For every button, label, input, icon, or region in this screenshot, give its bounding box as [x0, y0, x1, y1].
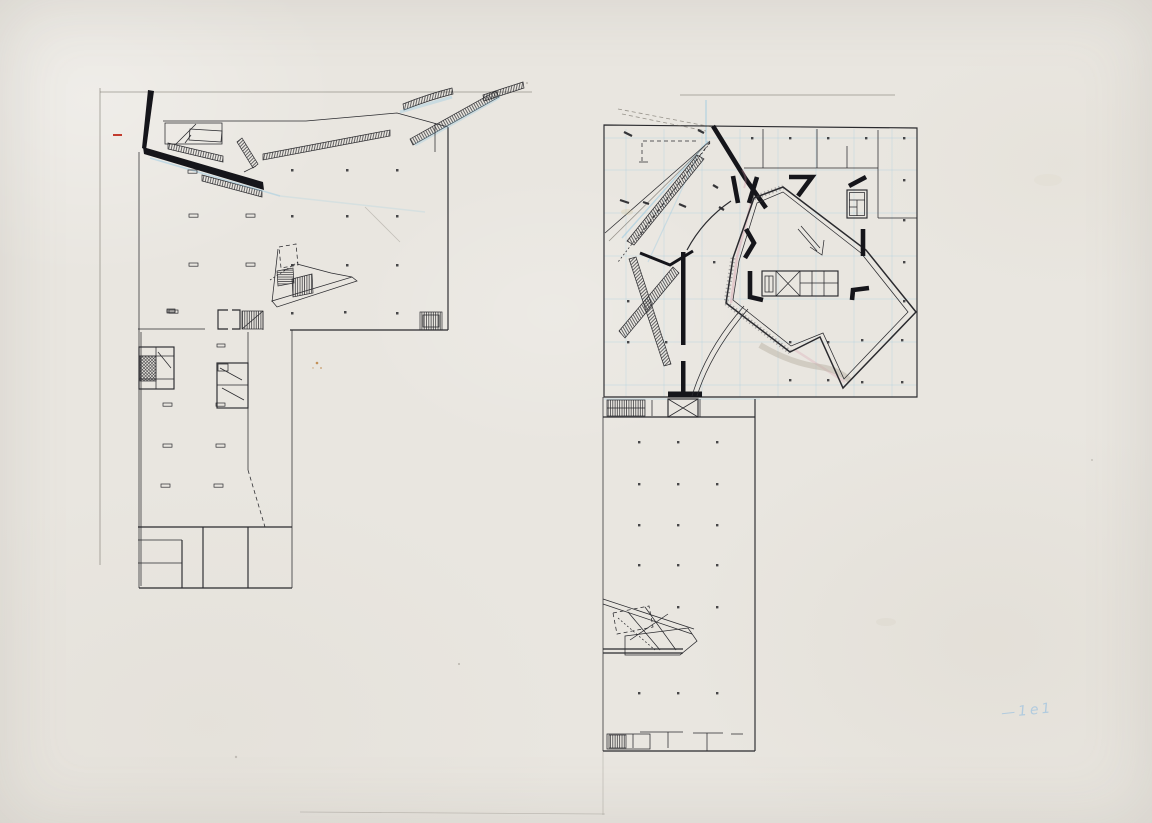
curved-wall: [687, 201, 731, 250]
plan-left: [100, 82, 532, 588]
square-outline: [604, 125, 917, 397]
thick-wall: [142, 90, 154, 150]
plan-right: [603, 95, 917, 815]
elevator-core-northeast: [847, 190, 867, 218]
wing-interior: [138, 310, 292, 588]
wing-column-dots: [638, 441, 718, 694]
blue-highlight: [280, 196, 425, 212]
loop-wall-inner: [733, 192, 908, 379]
curved-wall: [692, 306, 744, 396]
paper-sheet: —1e1: [0, 0, 1152, 823]
hatched-ramp-band: [619, 267, 679, 338]
hatched-ramp-band: [483, 82, 524, 101]
stair-treads: [277, 268, 294, 286]
south-rooms: [607, 732, 743, 751]
pencil-edge-line: [300, 812, 605, 814]
stair-hatch: [609, 735, 626, 748]
north-rooms: [744, 129, 917, 218]
hatched-ramp-band: [263, 130, 390, 160]
column-grid-hall: [167, 169, 399, 315]
wall-brackets: [733, 176, 869, 300]
stair-core: [217, 363, 248, 408]
direction-arrow: [798, 226, 824, 255]
auditorium-sketch: [603, 599, 697, 655]
stair-treads: [292, 274, 313, 297]
hatched-ramp-band: [627, 155, 704, 245]
elevator-crosshatch: [140, 356, 156, 381]
central-stair: [270, 244, 357, 307]
hall-outline: [138, 90, 448, 588]
ramp-bands: [150, 82, 524, 212]
crossing-ramp-bands: [619, 257, 679, 366]
blue-construction-grid: [604, 100, 917, 399]
elevator-east: [420, 312, 442, 330]
south-wing: [603, 397, 755, 815]
drawing-sheet: [0, 0, 1152, 823]
loop-wall-outer: [726, 187, 916, 388]
hatched-ramp-band: [237, 138, 258, 168]
blue-highlight: [150, 158, 280, 196]
stair-core-south: [218, 310, 263, 329]
gallery-loop: [726, 170, 916, 388]
skylight-grid: [762, 271, 838, 296]
dashed-wall: [248, 470, 265, 527]
